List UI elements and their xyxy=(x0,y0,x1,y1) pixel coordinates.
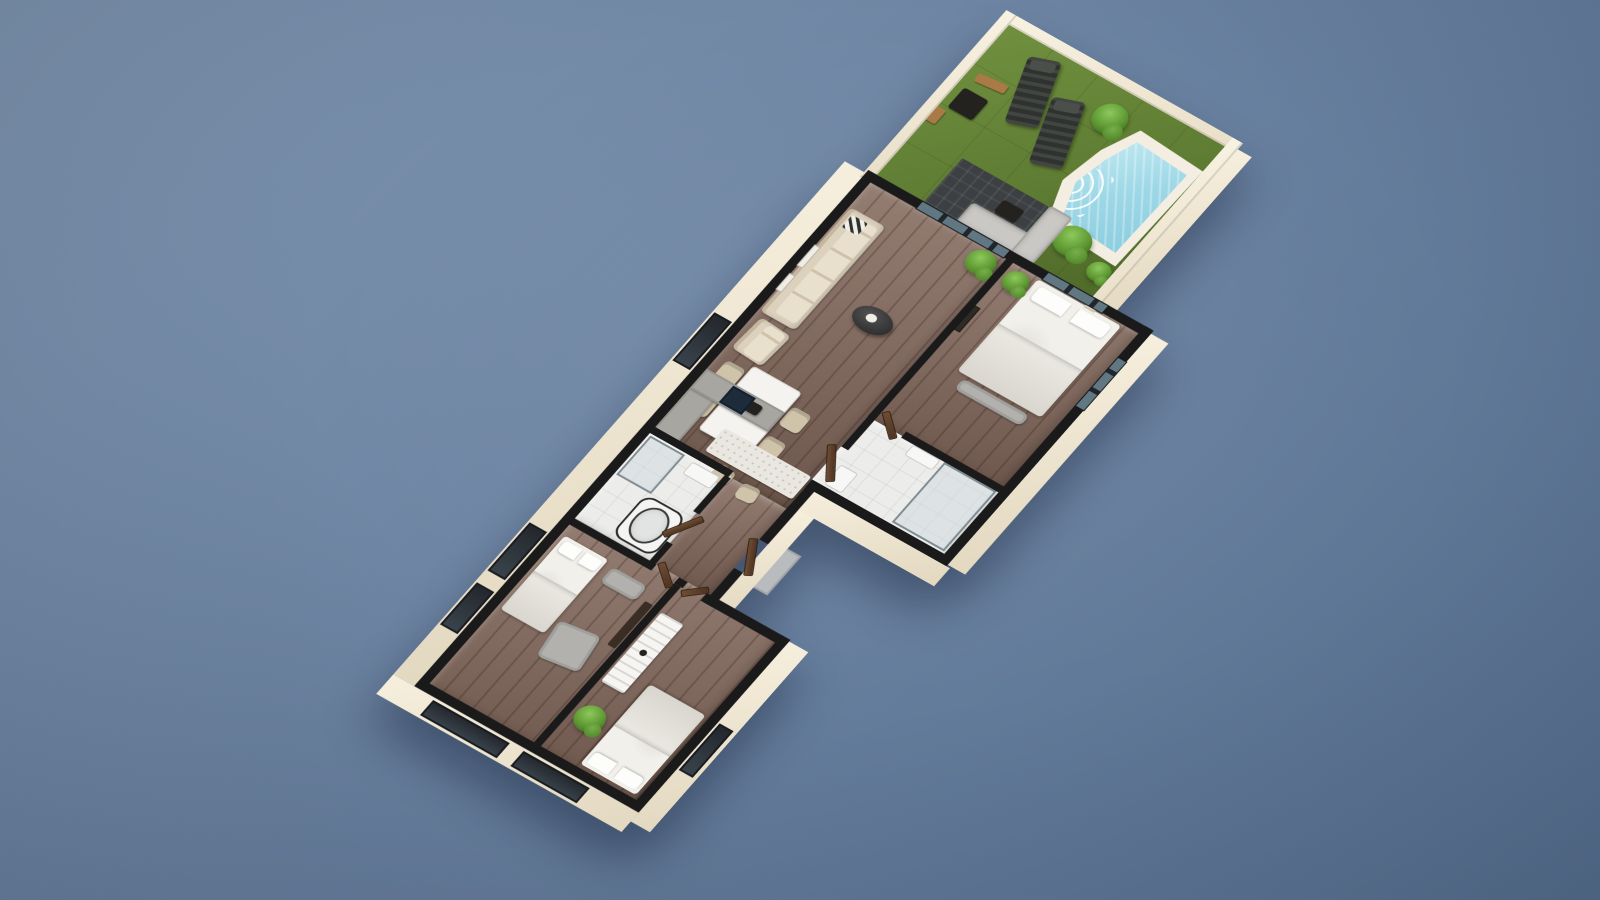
scene-background xyxy=(0,0,1600,900)
